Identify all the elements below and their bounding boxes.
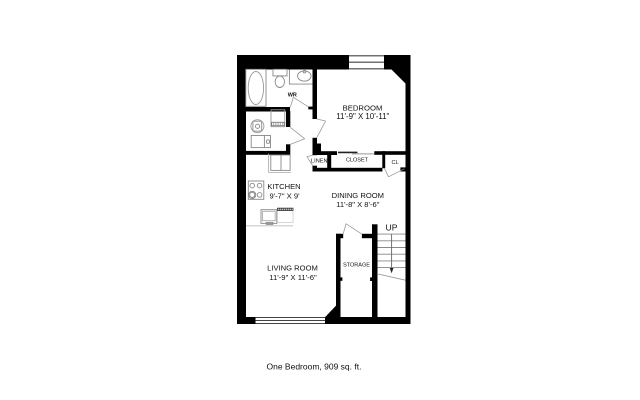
svg-text:DINING ROOM: DINING ROOM (332, 191, 384, 200)
svg-text:CLOSET: CLOSET (346, 158, 369, 164)
svg-text:LIVING ROOM: LIVING ROOM (267, 264, 318, 273)
svg-text:UP: UP (386, 222, 398, 232)
svg-text:WR: WR (288, 92, 297, 98)
svg-text:CL: CL (391, 160, 398, 166)
svg-text:LINEN: LINEN (311, 159, 327, 165)
svg-text:BEDROOM: BEDROOM (343, 103, 383, 112)
svg-text:11'-9" X 10'-11": 11'-9" X 10'-11" (336, 112, 389, 121)
svg-text:11'-8" X 8'-6": 11'-8" X 8'-6" (336, 200, 379, 209)
svg-text:KITCHEN: KITCHEN (267, 182, 300, 191)
svg-text:9'-7" X 9': 9'-7" X 9' (269, 191, 300, 200)
svg-text:STORAGE: STORAGE (343, 263, 370, 269)
svg-text:11'-9" X 11'-6": 11'-9" X 11'-6" (269, 273, 317, 282)
svg-text:One Bedroom, 909 sq. ft.: One Bedroom, 909 sq. ft. (267, 362, 362, 372)
